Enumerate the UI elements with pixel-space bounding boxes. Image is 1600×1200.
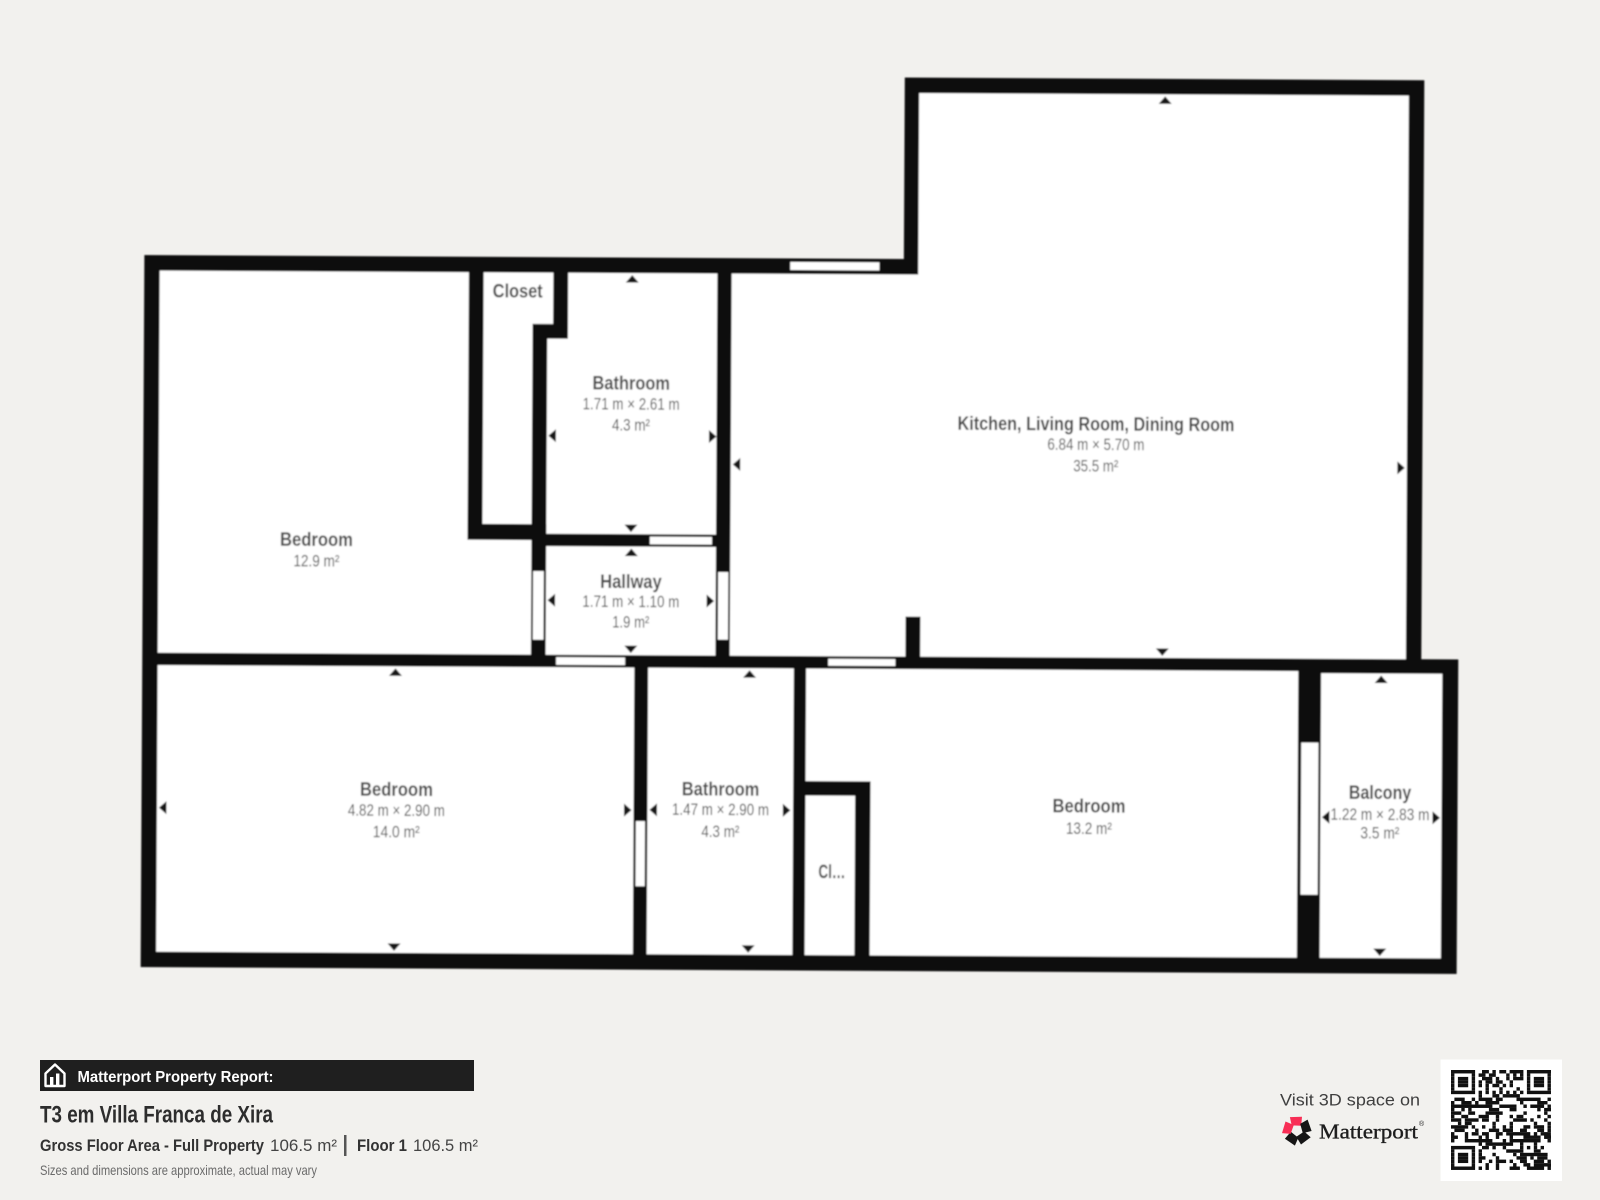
svg-text:Bathroom: Bathroom: [682, 779, 760, 800]
svg-text:1.9 m²: 1.9 m²: [612, 613, 649, 631]
svg-text:Matterport: Matterport: [1319, 1120, 1418, 1144]
svg-text:Closet: Closet: [493, 281, 544, 302]
svg-text:4.3 m²: 4.3 m²: [701, 823, 740, 841]
svg-text:3.5 m²: 3.5 m²: [1360, 824, 1400, 842]
svg-text:Bedroom: Bedroom: [280, 530, 353, 551]
svg-text:®: ®: [1419, 1120, 1425, 1128]
svg-text:Sizes and dimensions are appro: Sizes and dimensions are approximate, ac…: [40, 1162, 317, 1178]
svg-text:Matterport Property Report:: Matterport Property Report:: [78, 1069, 274, 1086]
svg-text:Floor 1: Floor 1: [357, 1137, 407, 1155]
svg-text:1.47 m × 2.90 m: 1.47 m × 2.90 m: [672, 801, 769, 820]
svg-text:Visit 3D space on: Visit 3D space on: [1280, 1091, 1420, 1110]
svg-text:4.3 m²: 4.3 m²: [612, 417, 651, 435]
svg-text:106.5 m²: 106.5 m²: [270, 1137, 338, 1155]
svg-text:1.71 m × 1.10 m: 1.71 m × 1.10 m: [582, 593, 679, 612]
svg-text:Gross Floor Area - Full Proper: Gross Floor Area - Full Property: [40, 1137, 265, 1155]
svg-text:Hallway: Hallway: [600, 572, 662, 593]
svg-text:6.84 m × 5.70 m: 6.84 m × 5.70 m: [1047, 436, 1144, 455]
svg-text:Cl…: Cl…: [818, 862, 845, 883]
svg-text:12.9 m²: 12.9 m²: [293, 552, 340, 570]
svg-text:106.5 m²: 106.5 m²: [413, 1137, 478, 1155]
svg-text:1.71 m × 2.61 m: 1.71 m × 2.61 m: [583, 395, 680, 414]
svg-text:Bedroom: Bedroom: [1052, 796, 1125, 817]
svg-text:13.2 m²: 13.2 m²: [1066, 820, 1113, 838]
svg-text:Kitchen, Living Room, Dining R: Kitchen, Living Room, Dining Room: [957, 414, 1234, 436]
svg-text:4.82 m × 2.90 m: 4.82 m × 2.90 m: [348, 802, 445, 821]
svg-text:35.5 m²: 35.5 m²: [1073, 457, 1119, 475]
svg-text:1.22 m × 2.83 m: 1.22 m × 2.83 m: [1330, 806, 1429, 825]
svg-text:T3 em Villa Franca de Xira: T3 em Villa Franca de Xira: [40, 1102, 274, 1129]
svg-text:Bedroom: Bedroom: [360, 780, 433, 801]
svg-text:Balcony: Balcony: [1349, 783, 1412, 804]
svg-text:Bathroom: Bathroom: [592, 373, 670, 394]
svg-text:14.0 m²: 14.0 m²: [373, 823, 421, 841]
